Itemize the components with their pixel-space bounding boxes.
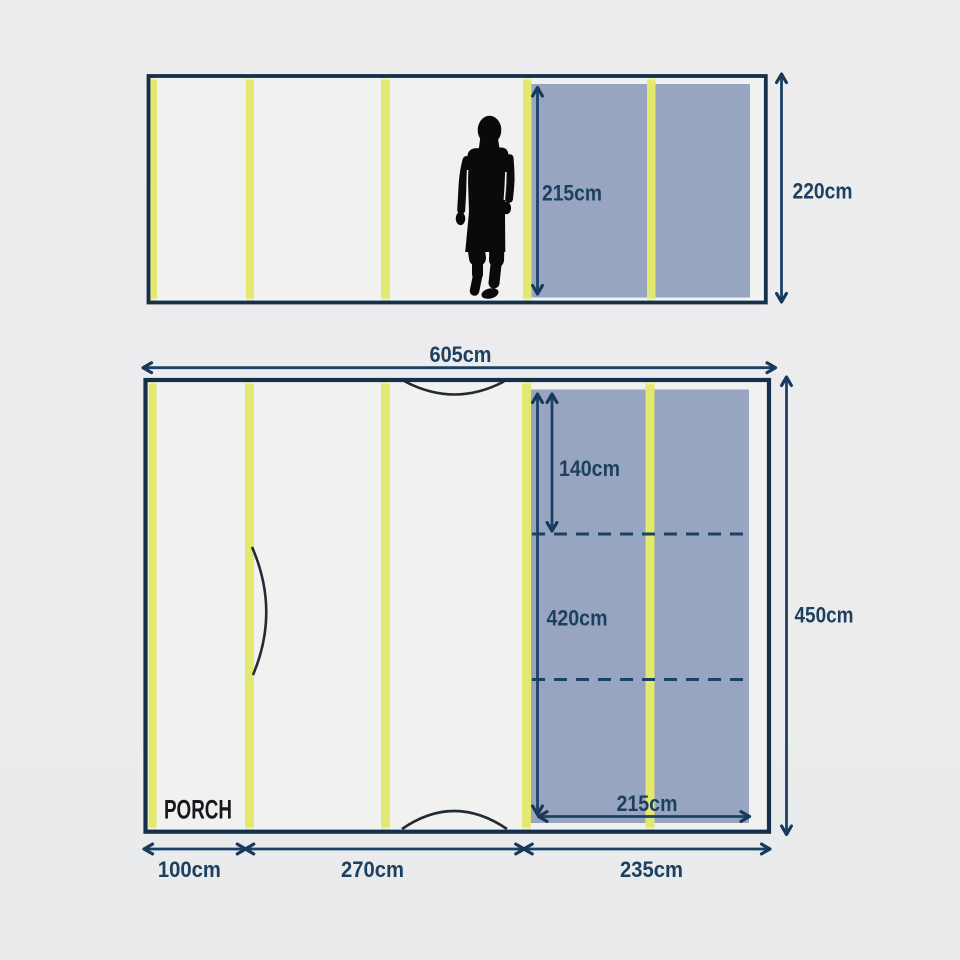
svg-text:100cm: 100cm (158, 857, 221, 882)
svg-text:420cm: 420cm (547, 606, 608, 631)
svg-text:140cm: 140cm (559, 456, 620, 481)
svg-text:270cm: 270cm (341, 857, 404, 882)
svg-text:450cm: 450cm (795, 603, 854, 628)
svg-text:215cm: 215cm (617, 791, 678, 816)
svg-text:PORCH: PORCH (164, 795, 232, 825)
svg-text:215cm: 215cm (542, 180, 602, 205)
svg-text:220cm: 220cm (793, 178, 853, 203)
svg-text:605cm: 605cm (430, 342, 492, 367)
svg-text:235cm: 235cm (620, 857, 683, 882)
